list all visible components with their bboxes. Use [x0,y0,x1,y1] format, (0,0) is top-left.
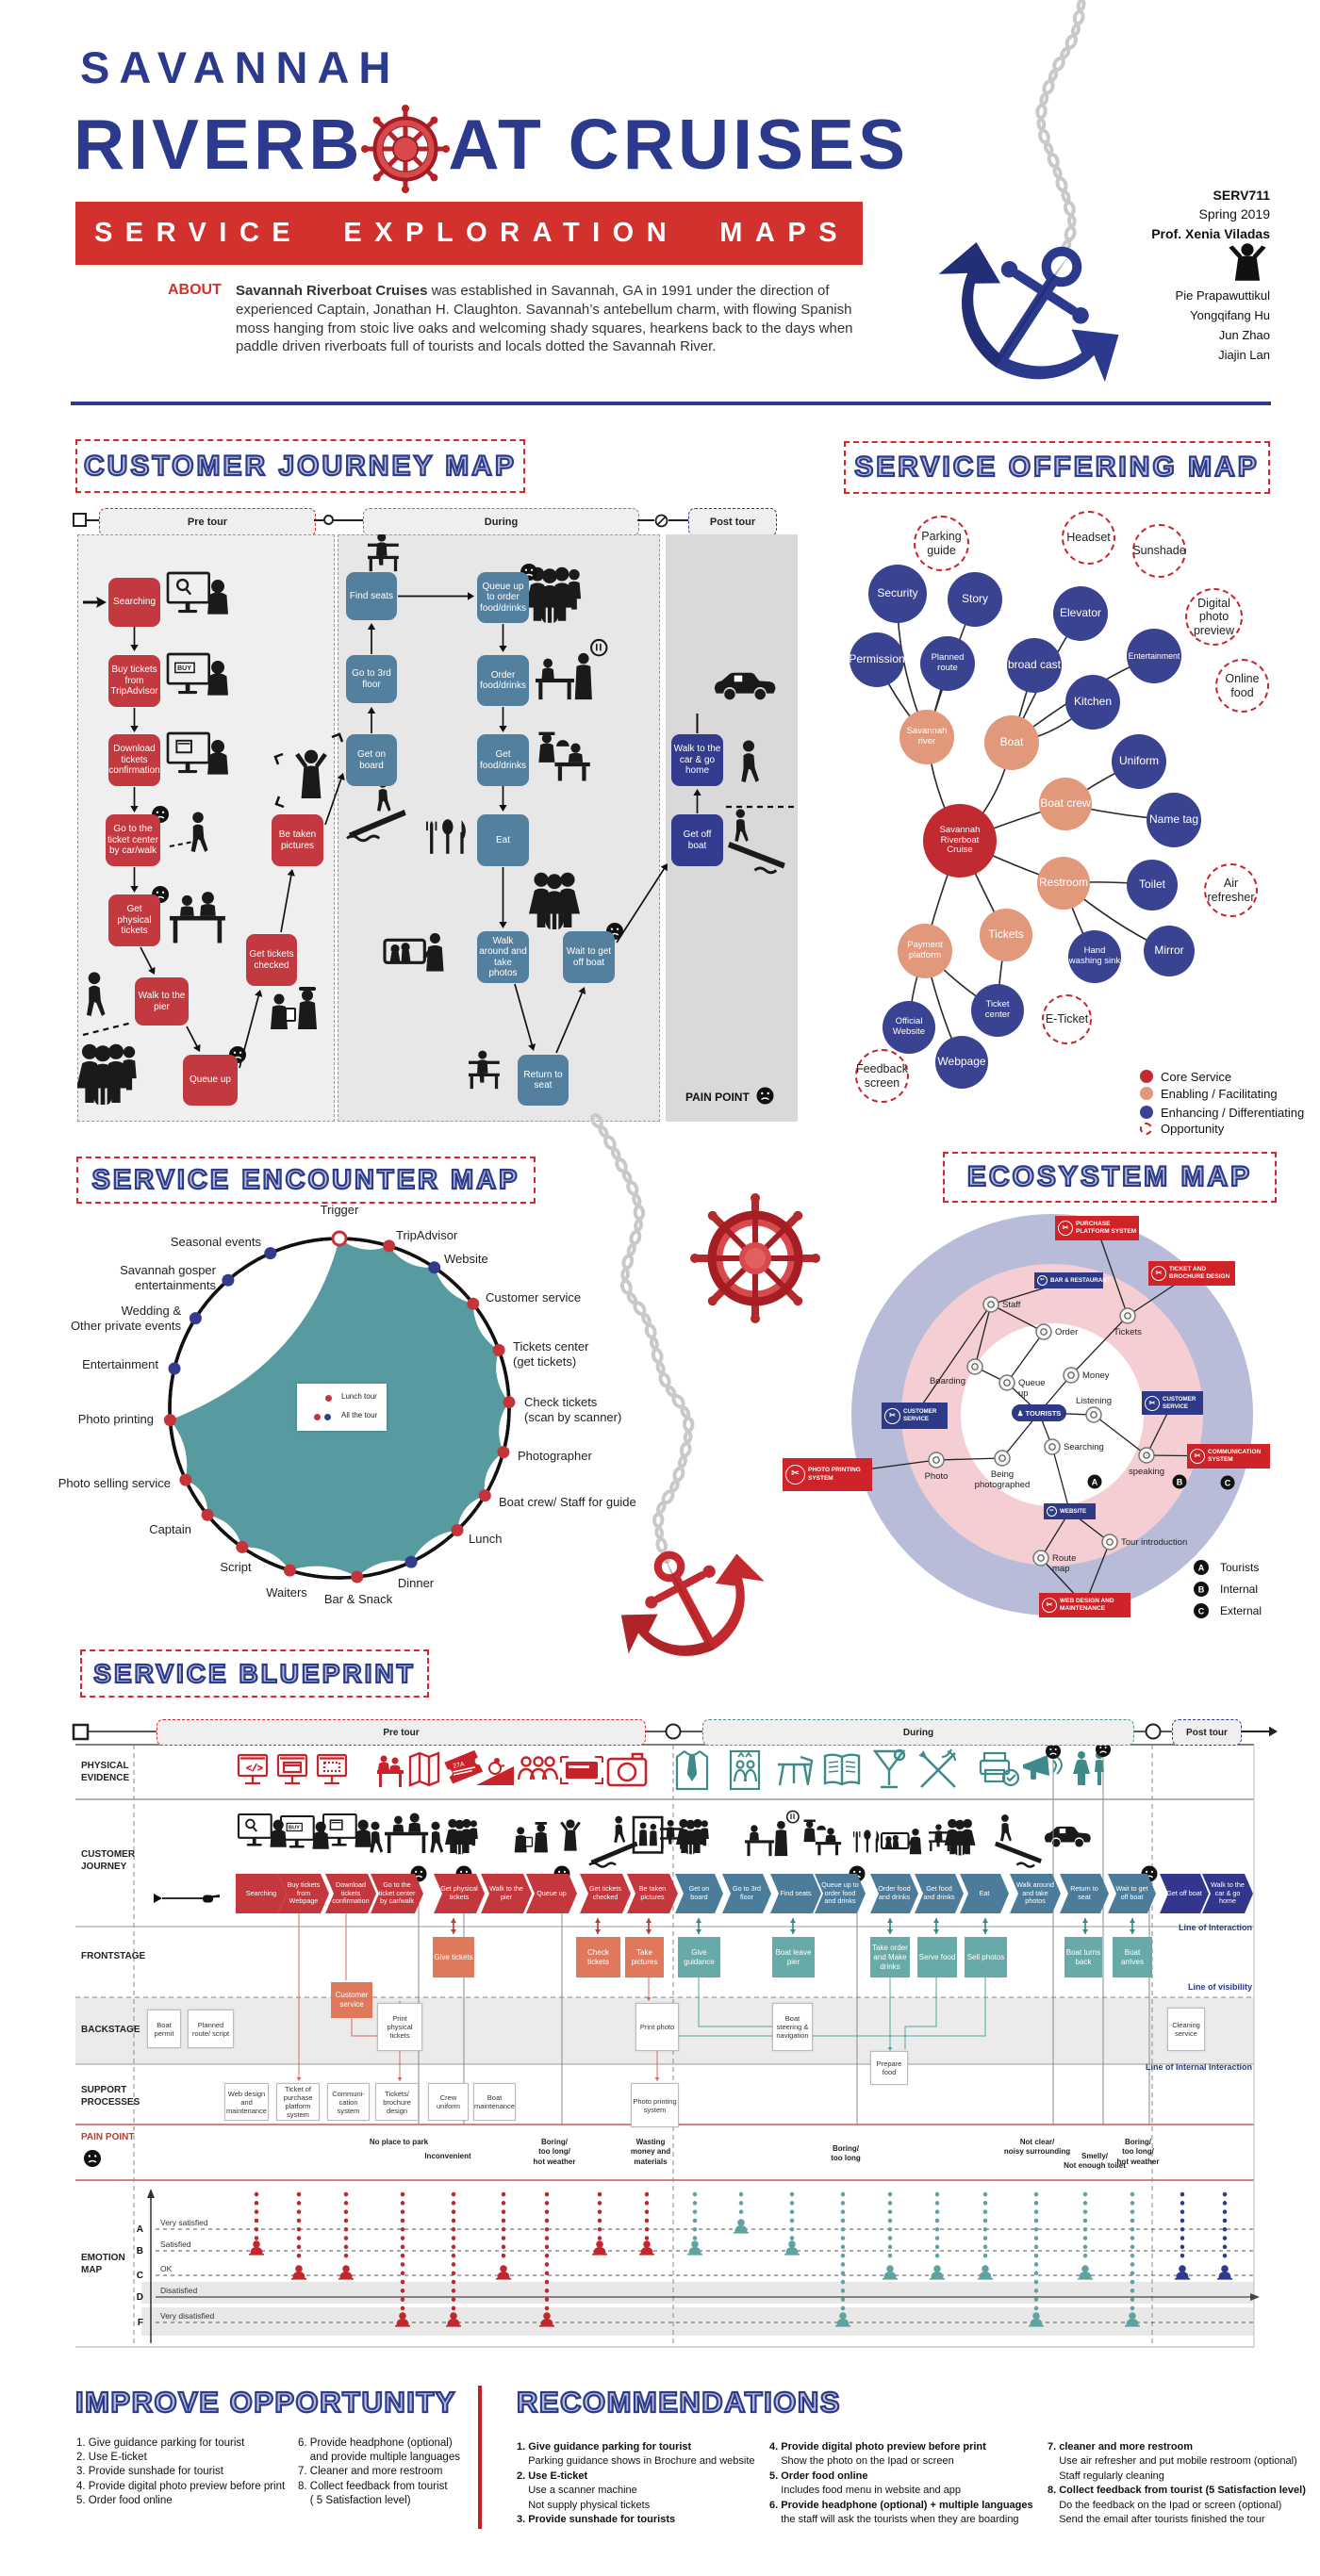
svg-text:Money: Money [1082,1370,1110,1381]
svg-text:Being: Being [991,1469,1014,1480]
svg-text:Very satisfied: Very satisfied [160,2218,208,2227]
svg-text:speaking: speaking [1129,1467,1164,1477]
svg-text:BUY: BUY [177,665,191,672]
svg-text:BUY: BUY [289,1826,300,1831]
svg-text:C: C [1198,1607,1205,1616]
svg-text:Satisfied: Satisfied [160,2240,191,2249]
svg-text:Tour introduction: Tour introduction [1121,1537,1187,1548]
svg-text:Internal: Internal [1220,1583,1258,1596]
svg-text:OK: OK [160,2264,173,2273]
svg-text:Staff: Staff [1002,1300,1021,1310]
svg-text:Listening: Listening [1076,1396,1112,1406]
svg-text:Order: Order [1055,1327,1078,1337]
svg-text:External: External [1220,1604,1262,1617]
svg-text:up: up [1018,1388,1029,1399]
svg-text:Photo: Photo [925,1471,949,1482]
svg-text:Tickets: Tickets [1114,1327,1142,1337]
svg-text:C: C [1225,1479,1231,1488]
svg-text:Route: Route [1052,1553,1076,1564]
svg-text:map: map [1052,1564,1069,1574]
svg-text:Very disatisfied: Very disatisfied [160,2311,214,2321]
svg-text:D: D [137,2292,143,2303]
svg-text:B: B [1198,1585,1205,1595]
svg-text:Tourists: Tourists [1220,1561,1259,1574]
svg-text:Boarding: Boarding [930,1376,965,1386]
svg-text:A: A [1198,1564,1205,1573]
svg-text:Searching: Searching [1064,1442,1104,1452]
svg-text:A: A [1092,1478,1098,1487]
svg-text:F: F [138,2318,143,2328]
svg-text:Queue: Queue [1018,1378,1046,1388]
svg-text:A: A [137,2224,143,2235]
svg-text:Disatisfied: Disatisfied [160,2286,197,2295]
svg-text:</>: </> [246,1764,263,1775]
svg-text:B: B [1177,1478,1183,1487]
svg-text:photographed: photographed [975,1480,1031,1490]
